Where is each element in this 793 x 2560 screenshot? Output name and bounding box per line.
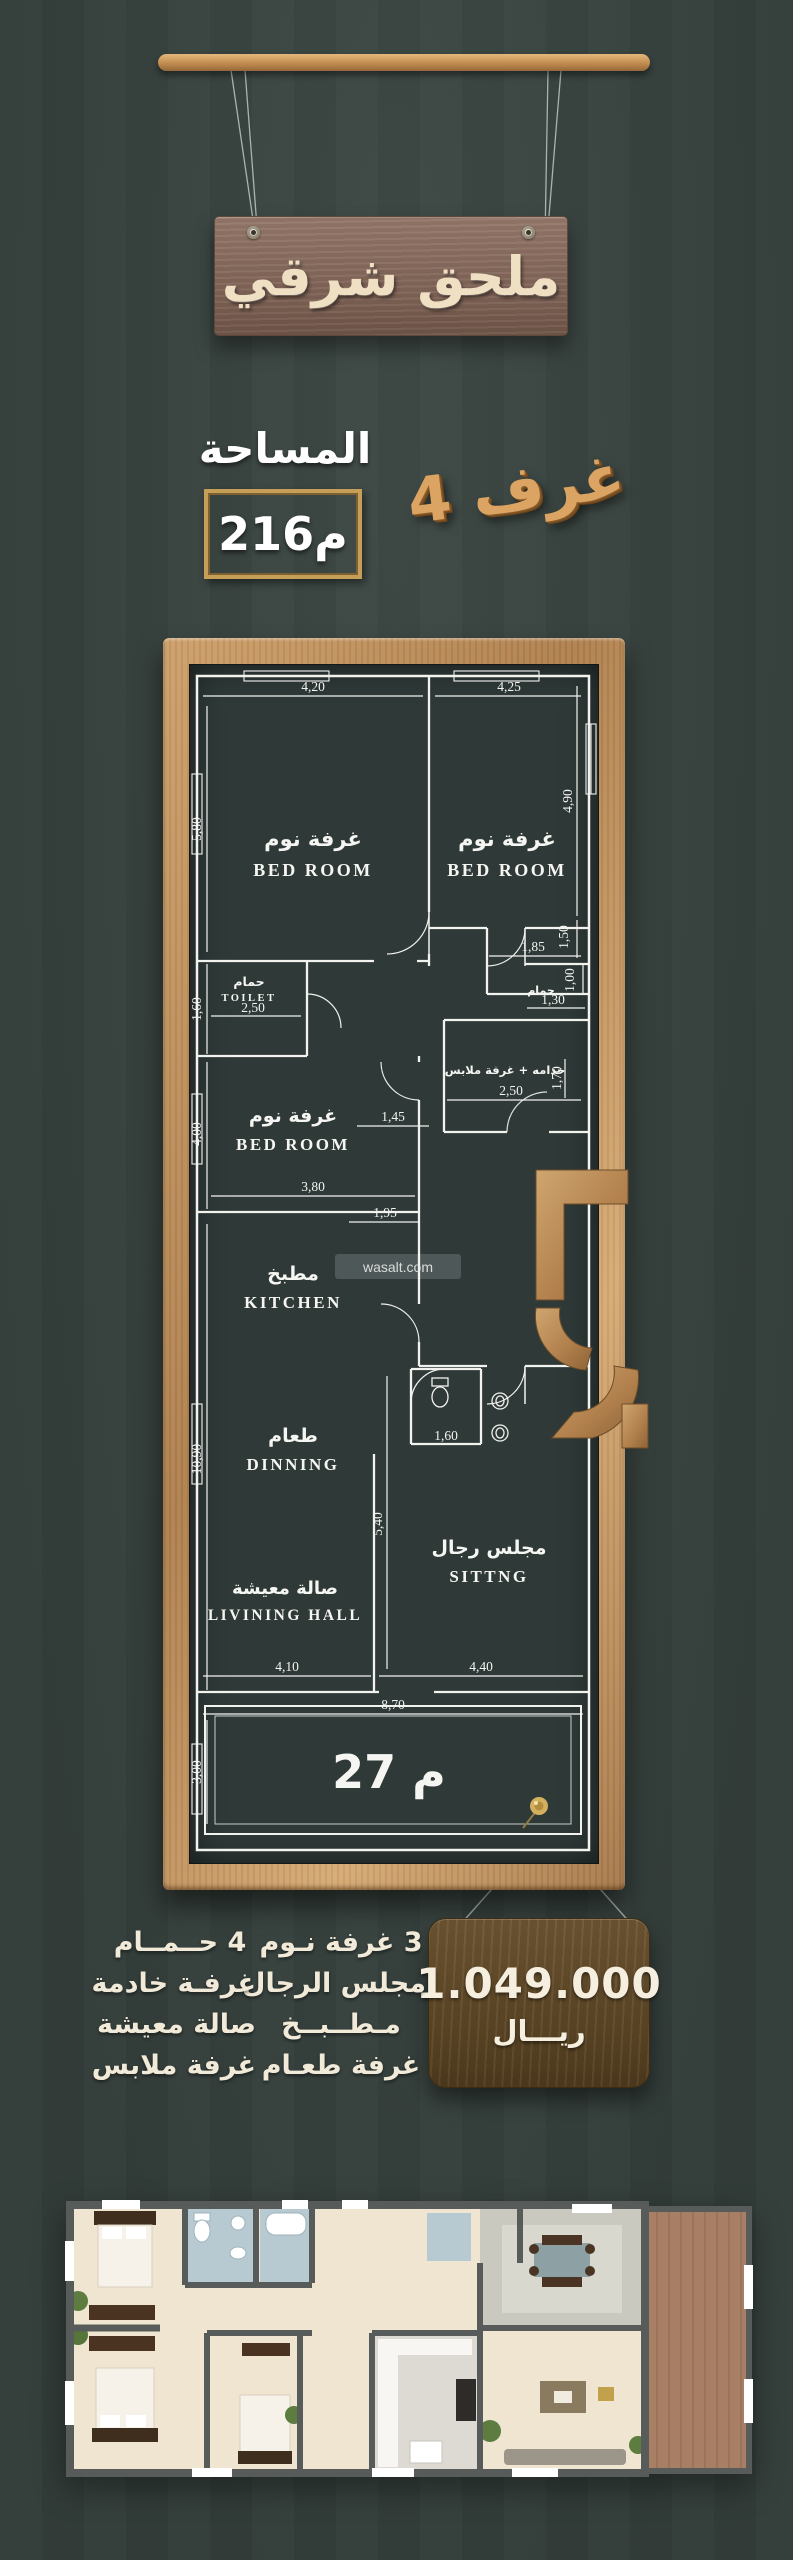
feature-item: غرفة ملابس: [104, 2045, 256, 2086]
area-label: المساحة: [196, 424, 374, 473]
features-column-1: 3 غرفة نـوم مجلس الرجال مـطــبــخ غرفة ط…: [256, 1922, 426, 2086]
price-sign: 1.049.000 ريـــال: [428, 1918, 650, 2088]
room-living-ar: صالة معيشة: [232, 1578, 338, 1599]
svg-text:1,50: 1,50: [556, 925, 571, 949]
listing-title: ملحق شرقي: [222, 245, 561, 308]
wooden-rod: [158, 54, 650, 71]
terrace-deck: [645, 2209, 749, 2471]
room-bath2-ar: حمام: [527, 984, 555, 997]
real-estate-poster: ملحق شرقي المساحة 216م 4 غرف: [0, 0, 793, 2560]
room-bed1-en: BED ROOM: [253, 860, 373, 880]
svg-text:3,00: 3,00: [189, 1760, 204, 1784]
grommet-icon: [522, 226, 535, 239]
grommet-icon: [247, 226, 260, 239]
svg-text:1,45: 1,45: [381, 1109, 405, 1124]
feature-item: 3 غرفة نـوم: [256, 1922, 426, 1963]
pushpin-icon: [523, 1797, 548, 1828]
rooms-count: 4 غرف: [394, 438, 637, 539]
svg-text:wasalt.com: wasalt.com: [362, 1259, 433, 1275]
room-sitting-en: SITTNG: [449, 1567, 528, 1586]
watermark: wasalt.com: [335, 1254, 461, 1279]
room-maid-ar: خدامه + غرفة ملابس: [445, 1063, 566, 1077]
floor-plan-drawing: 4,20 4,25 5,80 4,90 1,50 1,60 2,50 1,85 …: [189, 664, 599, 1864]
dining-area: [480, 2208, 642, 2328]
room-living-en: LIVINING HALL: [208, 1607, 362, 1624]
svg-text:1,60: 1,60: [434, 1428, 458, 1443]
room-dining-en: DINNING: [246, 1455, 339, 1474]
svg-text:5,80: 5,80: [189, 817, 204, 841]
feature-item: غرفـة خادمة: [104, 1963, 256, 2004]
svg-text:1,95: 1,95: [373, 1205, 397, 1220]
room-toilet-en: TOILET: [221, 993, 276, 1004]
room-kitchen-ar: مطبخ: [267, 1263, 319, 1285]
svg-text:1,00: 1,00: [562, 968, 577, 992]
room-kitchen-en: KITCHEN: [244, 1293, 342, 1312]
kitchen-area: [375, 2335, 479, 2473]
room-bed2-ar: غرفة نوم: [458, 827, 556, 851]
floor-plan-frame: 4,20 4,25 5,80 4,90 1,50 1,60 2,50 1,85 …: [163, 638, 625, 1890]
svg-text:4,00: 4,00: [189, 1122, 204, 1146]
svg-text:4,20: 4,20: [301, 679, 325, 694]
room-dining-ar: طعام: [268, 1425, 318, 1447]
svg-text:4,40: 4,40: [469, 1659, 493, 1674]
svg-text:4,25: 4,25: [497, 679, 521, 694]
room-sitting-ar: مجلس رجال: [432, 1537, 547, 1559]
room-bed3-ar: غرفة نوم: [249, 1105, 337, 1127]
floor-plan: 4,20 4,25 5,80 4,90 1,50 1,60 2,50 1,85 …: [189, 664, 599, 1864]
features-column-2: 4 حــمــام غرفـة خادمة صالة معيشة غرفة م…: [104, 1922, 256, 2086]
feature-item: مـطــبــخ: [256, 2004, 426, 2045]
terrace-label: 27 م: [332, 1745, 446, 1799]
svg-text:4,10: 4,10: [275, 1659, 299, 1674]
feature-item: 4 حــمــام: [104, 1922, 256, 1963]
title-sign: ملحق شرقي: [214, 216, 568, 336]
room-bed2-en: BED ROOM: [447, 860, 567, 880]
area-value: 216م: [218, 507, 348, 561]
room-bed3-en: BED ROOM: [236, 1135, 350, 1154]
room-bed1-ar: غرفة نوم: [264, 827, 362, 851]
svg-text:1,85: 1,85: [521, 939, 545, 954]
price-amount: 1.049.000: [416, 1959, 661, 2008]
svg-text:2,50: 2,50: [499, 1083, 523, 1098]
area-value-box: 216م: [204, 489, 362, 579]
svg-text:8,70: 8,70: [381, 1697, 405, 1712]
svg-text:1,60: 1,60: [189, 997, 204, 1021]
svg-text:5,40: 5,40: [370, 1512, 385, 1536]
svg-text:10,90: 10,90: [189, 1444, 204, 1475]
svg-text:3,80: 3,80: [301, 1179, 325, 1194]
feature-item: مجلس الرجال: [256, 1963, 426, 2004]
feature-item: غرفة طعـام: [256, 2045, 426, 2086]
price-currency: ريـــال: [492, 2014, 585, 2048]
feature-item: صالة معيشة: [104, 2004, 256, 2045]
room-toilet-ar: حمام: [233, 974, 264, 990]
unit-3d-plan: [42, 2183, 757, 2505]
svg-text:4,90: 4,90: [560, 789, 575, 813]
